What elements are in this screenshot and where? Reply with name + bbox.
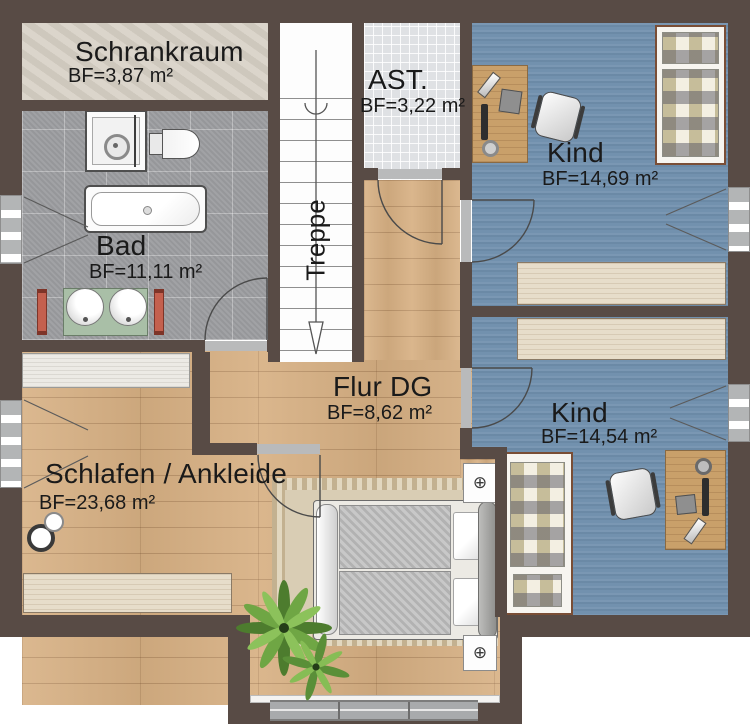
room-name-bad: Bad — [96, 230, 146, 262]
small-clock-icon — [44, 512, 64, 532]
wall-schrankraum-bottom — [22, 100, 280, 111]
towel-radiator-right — [154, 289, 164, 335]
floor-corridor — [364, 180, 460, 360]
wall-flur-stub — [192, 352, 210, 455]
wardrobe-schlafen-top — [22, 353, 190, 388]
duvet-bottom — [339, 571, 451, 635]
bed-kind-bottom — [503, 452, 573, 615]
wall-schlafen-door — [192, 443, 257, 455]
duvet-kind-top — [662, 69, 719, 157]
bathtub — [84, 185, 207, 233]
roof-window-kind-bottom — [728, 384, 750, 442]
door-jamb-ast — [378, 169, 442, 179]
wall-right — [728, 23, 750, 637]
room-area-schlafen: BF=23,68 m² — [39, 492, 155, 515]
toilet-tank — [149, 133, 163, 155]
pillow-kind-top — [662, 32, 719, 64]
wall-jog-horizontal — [460, 447, 507, 459]
roof-window-bad — [0, 195, 22, 264]
toilet — [162, 129, 200, 159]
room-area-ast: BF=3,22 m² — [360, 95, 465, 118]
bed-kind-top — [655, 25, 726, 165]
washbasin-right — [109, 288, 147, 326]
window-south — [270, 700, 478, 721]
nightstand-lamp-icon: ⊕ — [473, 643, 487, 663]
shower-glass — [134, 115, 136, 167]
room-area-bad: BF=11,11 m² — [89, 261, 202, 284]
wall-bad-bottom-right — [267, 340, 280, 352]
duvet-top — [339, 505, 451, 569]
box-kind-bottom — [675, 494, 697, 515]
wall-stair-left — [268, 23, 280, 362]
room-area-schrankraum: BF=3,87 m² — [68, 65, 173, 88]
room-name-ast: AST. — [368, 64, 428, 96]
sideboard-schlafen-bottom — [23, 573, 232, 613]
room-name-schrankraum: Schrankraum — [75, 36, 244, 68]
room-name-kind-top: Kind — [547, 137, 604, 169]
door-jamb-kind-top — [461, 200, 471, 262]
room-name-flur: Flur DG — [333, 371, 432, 403]
room-area-kind-top: BF=14,69 m² — [542, 168, 658, 191]
floor-plan: ⊕ ⊕ — [0, 0, 750, 724]
shower — [85, 110, 147, 172]
room-area-flur: BF=8,62 m² — [327, 402, 432, 425]
wall-ast-bottom-left — [364, 168, 378, 180]
bed-footboard — [316, 504, 338, 635]
wall-stair-right — [352, 23, 364, 362]
nightstand-lamp-icon: ⊕ — [473, 473, 487, 493]
stool-kind-top — [482, 140, 499, 157]
roof-window-schlafen — [0, 400, 22, 488]
duvet-kind-bottom — [510, 462, 565, 567]
door-jamb-kind-bottom — [461, 368, 471, 428]
room-area-kind-bottom: BF=14,54 m² — [541, 426, 657, 449]
monitor-kind-top — [481, 104, 488, 140]
wall-bottom-right — [500, 615, 750, 637]
nightstand-bottom: ⊕ — [463, 635, 497, 671]
pillow-kind-bottom — [513, 574, 562, 607]
wall-bottom-left — [0, 615, 250, 637]
office-chair-kind-top — [533, 90, 583, 144]
wall-jog-vertical — [495, 459, 507, 617]
room-name-schlafen: Schlafen / Ankleide — [45, 458, 287, 490]
room-name-kind-bottom: Kind — [551, 397, 608, 429]
staircase — [280, 23, 352, 362]
shower-drain-icon — [104, 134, 130, 160]
door-jamb-bad — [205, 341, 267, 351]
wall-top — [0, 0, 750, 23]
wall-kind-divider — [472, 306, 728, 317]
monitor-kind-bottom — [702, 478, 709, 516]
box-kind-top — [499, 89, 523, 115]
wall-bad-bottom-left — [22, 340, 205, 352]
wall-kind-middle — [460, 262, 472, 368]
door-jamb-schlafen — [257, 444, 320, 454]
lamp-kind-bottom — [695, 458, 712, 475]
office-chair-kind-bottom — [608, 467, 658, 522]
bathtub-basin — [91, 192, 200, 226]
roof-window-kind-top — [728, 187, 750, 252]
double-bed — [313, 500, 498, 640]
wardrobe-kind-top — [517, 262, 726, 305]
wall-ast-bottom-right — [442, 168, 460, 180]
room-name-treppe: Treppe — [301, 199, 332, 280]
wall-left — [0, 23, 22, 637]
nightstand-top: ⊕ — [463, 463, 497, 503]
towel-radiator-left — [37, 289, 47, 335]
washbasin-left — [66, 288, 104, 326]
wardrobe-kind-bottom — [517, 318, 726, 360]
